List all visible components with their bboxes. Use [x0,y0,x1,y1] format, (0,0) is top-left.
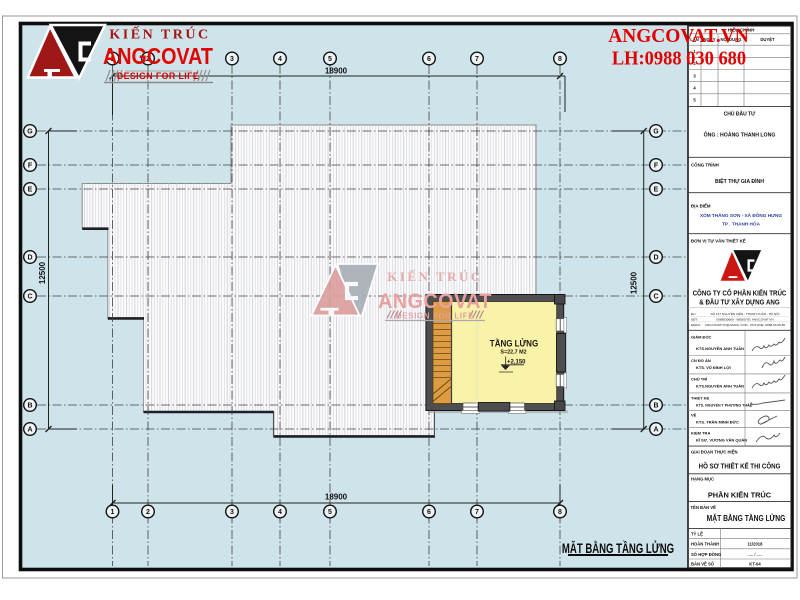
svg-text:TẦNG LỬNG: TẦNG LỬNG [490,337,539,349]
svg-text:F: F [28,163,33,170]
svg-text:BẢN VẼ SỐ: BẢN VẼ SỐ [691,561,715,566]
svg-text:ĐƠN VỊ TƯ VẤN THIẾT KẾ: ĐƠN VỊ TƯ VẤN THIẾT KẾ [691,239,746,244]
svg-text:8: 8 [558,509,562,516]
svg-text:ANGCOVAT: ANGCOVAT [378,289,492,313]
svg-text:E: E [654,187,659,194]
svg-text:TÊN BẢN VẼ: TÊN BẢN VẼ [691,505,717,510]
svg-text:DESIGN FOR LIFE: DESIGN FOR LIFE [396,312,474,321]
svg-text:F: F [654,163,659,170]
svg-text:PHẦN KIẾN TRÚC: PHẦN KIẾN TRÚC [708,490,772,500]
svg-text:B: B [653,403,658,410]
svg-text:18900: 18900 [325,493,348,502]
svg-text:EMAIL:: EMAIL: [691,323,701,327]
svg-text:CÔNG TRÌNH: CÔNG TRÌNH [691,163,719,168]
svg-text:ANGCOVAT.VN: ANGCOVAT.VN [608,25,749,47]
svg-text:CHỦ TRÌ: CHỦ TRÌ [691,377,707,382]
svg-text:D: D [27,255,32,262]
svg-text:1: 1 [111,509,115,516]
svg-text:4: 4 [278,509,282,516]
svg-text:G: G [653,129,659,136]
svg-text:MẶT BẰNG TẦNG LỬNG: MẶT BẰNG TẦNG LỬNG [707,512,786,523]
svg-text:ĐC:: ĐC: [691,312,696,316]
svg-text:7: 7 [475,509,479,516]
svg-text:18900: 18900 [325,67,348,76]
svg-text:5: 5 [328,56,332,63]
svg-text:THIẾT KẾ: THIẾT KẾ [691,396,710,401]
svg-text:ANGCOVAT: ANGCOVAT [103,42,214,69]
svg-text:KT-04: KT-04 [749,561,761,566]
svg-text:HẠNG MỤC: HẠNG MỤC [691,477,714,482]
svg-text:5: 5 [328,509,332,516]
svg-text:D: D [653,255,658,262]
svg-text:ĐỊA ĐIỂM: ĐỊA ĐIỂM [691,204,711,209]
svg-text:12500: 12500 [38,261,47,284]
svg-text:GIAI ĐOẠN THỰC HIỆN: GIAI ĐOẠN THỰC HIỆN [691,450,738,455]
svg-text:KTS. NGUYỄN T PHƯƠNG THẢO: KTS. NGUYỄN T PHƯƠNG THẢO [696,403,753,408]
svg-text:DUYỆT: DUYỆT [760,37,775,42]
svg-text:SĐT:: SĐT: [691,318,698,322]
svg-text:DESIGN FOR LIFE: DESIGN FOR LIFE [117,71,199,81]
svg-text:..... / .....: ..... / ..... [747,552,762,557]
svg-text:G: G [27,129,33,136]
svg-text:ANGCOVAT.VN@GMAIL.COM - HOTLIN: ANGCOVAT.VN@GMAIL.COM - HOTLINE: 0988.03… [705,323,786,327]
svg-text:CHỦ ĐẦU TƯ: CHỦ ĐẦU TƯ [724,111,756,118]
svg-text:S=22,7 M2: S=22,7 M2 [500,350,526,356]
svg-text:TP . THANH HÓA: TP . THANH HÓA [722,220,761,227]
svg-text:0988030680 - WEBSITE: ANGCOVAT: 0988030680 - WEBSITE: ANGCOVAT.VN [716,318,773,322]
svg-text:11/2018: 11/2018 [748,542,764,547]
svg-text:ÔNG : HOÀNG THANH LONG: ÔNG : HOÀNG THANH LONG [704,131,776,139]
svg-text:CN ĐỒ ÁN: CN ĐỒ ÁN [691,358,711,363]
svg-text:VẼ: VẼ [691,413,697,418]
svg-text:3: 3 [230,509,234,516]
svg-text:6: 6 [427,509,431,516]
svg-text:GIÁM ĐỐC: GIÁM ĐỐC [691,335,712,340]
svg-text:8: 8 [558,56,562,63]
svg-text:12500: 12500 [630,271,639,294]
svg-text:SỐ HỢP ĐỒNG: SỐ HỢP ĐỒNG [691,552,721,557]
svg-text:BIỆT THỰ GIA ĐÌNH: BIỆT THỰ GIA ĐÌNH [715,177,764,185]
svg-text:4: 4 [278,56,282,63]
svg-text:KTS.NGUYỄN ANH TUẤN: KTS.NGUYỄN ANH TUẤN [696,346,744,351]
svg-text:A: A [27,427,32,434]
svg-text:A: A [653,427,658,434]
svg-text:KTS. TRẦN MINH ĐỨC: KTS. TRẦN MINH ĐỨC [696,420,739,425]
svg-text:XÓM THẮNG SƠN - XÃ ĐÔNG HƯNG: XÓM THẮNG SƠN - XÃ ĐÔNG HƯNG [700,211,782,218]
svg-text:7: 7 [475,56,479,63]
svg-text:C: C [27,294,32,301]
svg-text:3: 3 [230,56,234,63]
svg-text:E: E [28,187,33,194]
svg-text:SỐ 137 NGUYỄN XIỂN - THANH XUÂ: SỐ 137 NGUYỄN XIỂN - THANH XUÂN - HÀ NỘI [711,311,780,316]
svg-text:KĨ SƯ. VƯƠNG VĂN QUÂN: KĨ SƯ. VƯƠNG VĂN QUÂN [696,438,747,443]
svg-text:6: 6 [427,56,431,63]
svg-text:KTS. VŨ ĐÌNH LỢI: KTS. VŨ ĐÌNH LỢI [696,365,731,370]
svg-text:KTS.NGUYỄN ANH TUẤN: KTS.NGUYỄN ANH TUẤN [696,384,744,389]
svg-text:LH:0988 030 680: LH:0988 030 680 [612,48,746,70]
svg-text:B: B [27,403,32,410]
svg-text:HOÀN THÀNH: HOÀN THÀNH [691,542,719,547]
svg-text:KIẾN TRÚC: KIẾN TRÚC [109,26,210,43]
svg-text:C: C [653,294,658,301]
svg-text:TỶ LỆ: TỶ LỆ [691,532,703,537]
svg-text:KIẾN TRÚC: KIẾN TRÚC [387,269,483,284]
svg-text:2: 2 [146,509,150,516]
svg-text:KIỂM TRA: KIỂM TRA [691,431,710,436]
